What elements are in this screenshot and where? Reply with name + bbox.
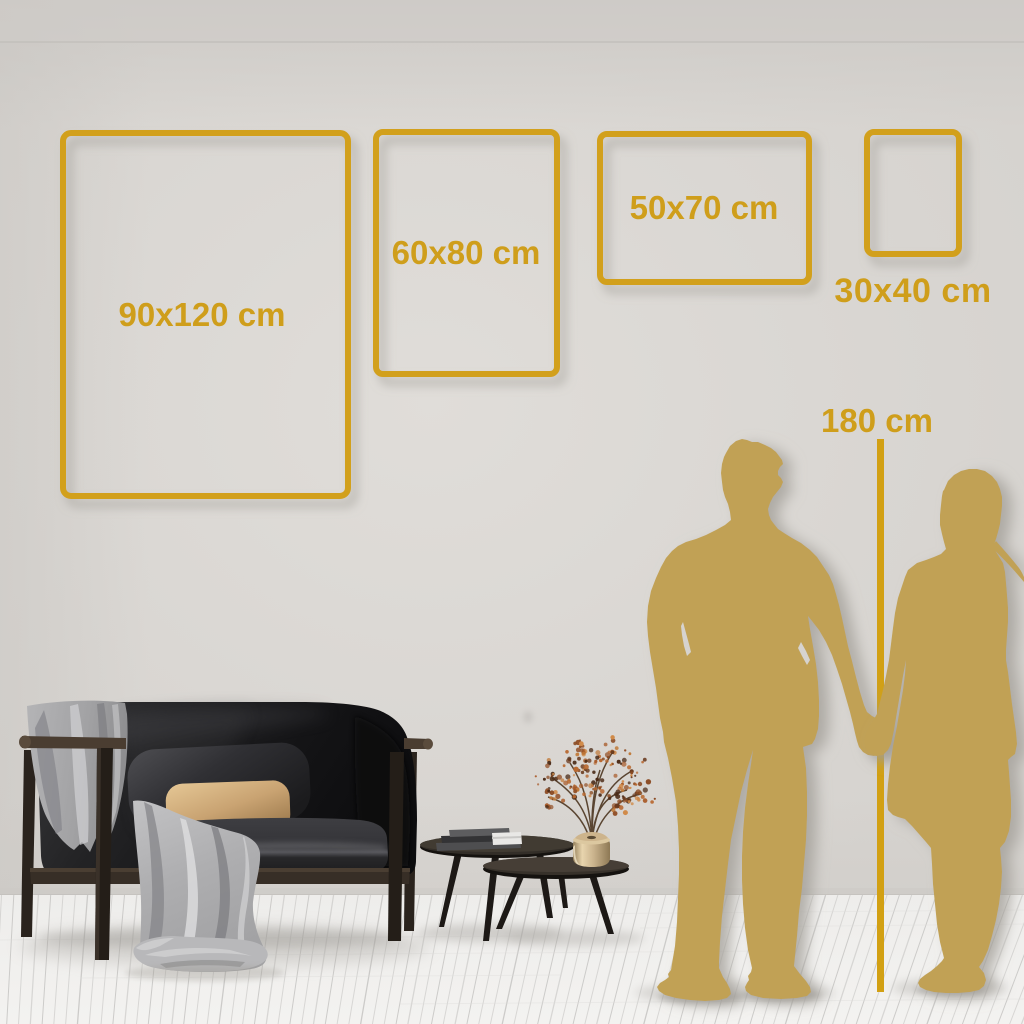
svg-text:90x120 cm: 90x120 cm: [119, 296, 286, 333]
svg-text:50x70 cm: 50x70 cm: [630, 189, 779, 226]
svg-text:60x80 cm: 60x80 cm: [392, 234, 541, 271]
svg-text:30x40 cm: 30x40 cm: [834, 272, 991, 310]
svg-text:180 cm: 180 cm: [821, 402, 933, 439]
